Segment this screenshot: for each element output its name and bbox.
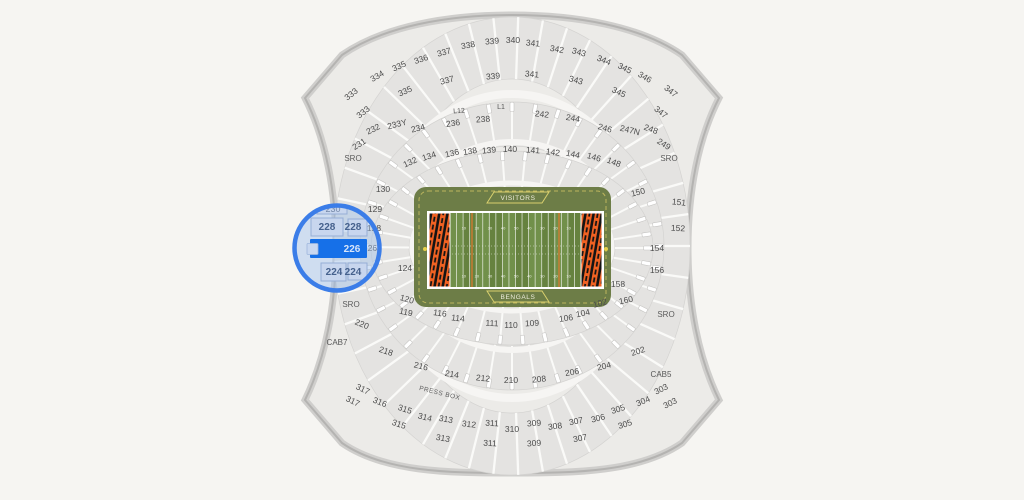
magnifier-section-label-224[interactable]: 224 <box>326 267 343 278</box>
aisle-marker <box>498 335 503 344</box>
sro-label[interactable]: SRO <box>657 310 674 319</box>
section-label-129[interactable]: 129 <box>368 204 382 214</box>
selected-section-notch <box>307 244 318 255</box>
selected-section-label[interactable]: 226 <box>344 244 361 255</box>
football-field: 101020203030404050504040303020201010 VIS… <box>414 187 611 307</box>
endzone-right <box>581 213 602 287</box>
section-label-236[interactable]: 236 <box>445 117 461 129</box>
sro-label[interactable]: SRO <box>342 300 359 309</box>
section-label-CAB7[interactable]: CAB7 <box>327 338 348 347</box>
stadium-seat-map: 101020203030404050504040303020201010 VIS… <box>0 0 1024 500</box>
yard-number: 30 <box>540 274 545 279</box>
yard-number: 30 <box>540 226 545 231</box>
section-label-238[interactable]: 238 <box>476 113 491 124</box>
magnifier-section-label-224[interactable]: 224 <box>345 267 362 278</box>
visitors-endzone-label: VISITORS <box>500 195 535 202</box>
sro-label[interactable]: SRO <box>344 154 361 163</box>
section-label-156[interactable]: 156 <box>650 265 664 275</box>
yard-number: 10 <box>462 226 467 231</box>
yard-number: 20 <box>475 226 480 231</box>
yard-number: 40 <box>527 226 532 231</box>
goal-marker-right <box>604 247 608 251</box>
yard-number: 10 <box>566 226 571 231</box>
section-label-310[interactable]: 310 <box>505 424 519 434</box>
section-label-110[interactable]: 110 <box>504 320 518 330</box>
sro-label[interactable]: SRO <box>660 154 677 163</box>
section-label-339[interactable]: 339 <box>485 70 500 81</box>
section-label-309[interactable]: 309 <box>527 437 542 448</box>
yard-number: 10 <box>566 274 571 279</box>
section-label-106[interactable]: 106 <box>558 312 574 324</box>
section-label-114[interactable]: 114 <box>451 312 466 323</box>
section-label-124[interactable]: 124 <box>398 263 412 273</box>
section-label-311[interactable]: 311 <box>485 418 499 429</box>
section-label-109[interactable]: 109 <box>525 318 540 329</box>
goal-marker-left <box>423 247 427 251</box>
section-label-210[interactable]: 210 <box>504 375 518 385</box>
section-label-309[interactable]: 309 <box>527 417 542 428</box>
section-label-308[interactable]: 308 <box>547 420 563 432</box>
yard-number: 20 <box>553 226 558 231</box>
yard-number: 40 <box>527 274 532 279</box>
section-label-312[interactable]: 312 <box>461 418 477 430</box>
section-label-L1[interactable]: L1 <box>497 104 505 111</box>
section-label-158[interactable]: 158 <box>611 279 625 289</box>
magnifier-section-label-228[interactable]: 228 <box>319 222 336 233</box>
section-label-152[interactable]: 152 <box>671 223 686 234</box>
section-label-339[interactable]: 339 <box>484 35 499 46</box>
yard-number: 50 <box>514 274 519 279</box>
yard-number: 10 <box>462 274 467 279</box>
seat-map-canvas: 101020203030404050504040303020201010 VIS… <box>0 0 1024 500</box>
yard-number: 20 <box>553 274 558 279</box>
section-label-341[interactable]: 341 <box>524 68 539 79</box>
section-label-212[interactable]: 212 <box>475 372 490 383</box>
section-label-341[interactable]: 341 <box>525 37 540 48</box>
section-label-130[interactable]: 130 <box>376 184 390 194</box>
section-label-154[interactable]: 154 <box>650 243 664 253</box>
section-label-151[interactable]: 151 <box>671 196 686 207</box>
section-label-142[interactable]: 142 <box>545 146 561 158</box>
yard-number: 50 <box>514 226 519 231</box>
bengals-endzone-label: BENGALS <box>501 294 536 301</box>
yard-number: 40 <box>501 226 506 231</box>
section-label-208[interactable]: 208 <box>531 373 546 384</box>
section-label-116[interactable]: 116 <box>433 307 448 319</box>
section-label-CAB5[interactable]: CAB5 <box>651 370 672 379</box>
magnifier-section-label-228[interactable]: 228 <box>345 222 362 233</box>
section-label-340[interactable]: 340 <box>506 35 520 45</box>
yard-number: 40 <box>501 274 506 279</box>
aisle-marker <box>510 103 514 112</box>
yard-number: 30 <box>488 226 493 231</box>
section-label-140[interactable]: 140 <box>503 144 517 154</box>
section-label-311[interactable]: 311 <box>483 438 497 449</box>
section-label-242[interactable]: 242 <box>534 108 549 119</box>
aisle-marker <box>520 335 525 344</box>
section-label-141[interactable]: 141 <box>526 145 541 156</box>
yard-number: 30 <box>488 274 493 279</box>
yard-number: 20 <box>475 274 480 279</box>
endzone-left <box>429 213 450 287</box>
section-label-L12[interactable]: L12 <box>453 108 465 116</box>
section-label-111[interactable]: 111 <box>485 318 499 329</box>
section-label-139[interactable]: 139 <box>481 144 496 155</box>
